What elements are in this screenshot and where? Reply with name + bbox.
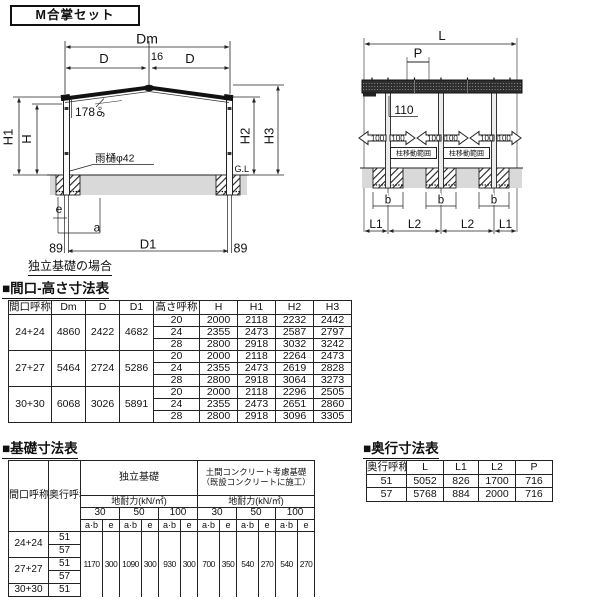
size-table-heading: ■間口-高さ寸法表 bbox=[2, 282, 109, 299]
dim-l2-label: L2 bbox=[408, 217, 422, 231]
table-cell: 2000 bbox=[200, 351, 238, 363]
gutter-note bbox=[70, 165, 154, 172]
d-value: 3026 bbox=[86, 387, 120, 423]
table-cell: 2828 bbox=[314, 363, 352, 375]
load-header: 50 bbox=[237, 508, 276, 520]
column-header: 奥行呼称 bbox=[367, 461, 407, 475]
dm-value: 4860 bbox=[52, 315, 86, 351]
dim-dm-label: Dm bbox=[136, 31, 158, 47]
table-cell: 2264 bbox=[276, 351, 314, 363]
spec-sheet-page: { "title_box": { "label": "M合掌セット" }, "c… bbox=[0, 0, 600, 600]
load-header: 100 bbox=[276, 508, 315, 520]
column-header: 奥行呼称 bbox=[49, 461, 81, 532]
column-header: L1 bbox=[444, 461, 479, 475]
column-right bbox=[227, 98, 233, 195]
leaf-header: a·b bbox=[237, 520, 259, 532]
group-header: 土間コンクリート考慮基礎 （既設コンクリートに施工） bbox=[198, 461, 315, 496]
table-cell: 716 bbox=[516, 474, 553, 488]
column-header: H bbox=[200, 301, 238, 315]
dim-h-label: H bbox=[19, 134, 34, 143]
table-cell: 2473 bbox=[314, 351, 352, 363]
size-table: 間口呼称DmDD1高さ呼称HH1H2H324+24486024224682202… bbox=[8, 300, 352, 423]
table-cell: 2651 bbox=[276, 399, 314, 411]
side-elevation-diagram: L P bbox=[335, 28, 600, 240]
dim-p-label: P bbox=[414, 46, 423, 61]
table-cell: 3242 bbox=[314, 339, 352, 351]
foundation-value: 300 bbox=[142, 532, 159, 597]
group-header: 独立基礎 bbox=[81, 461, 198, 496]
depth-designation: 51 bbox=[49, 532, 81, 545]
table-cell: 2442 bbox=[314, 315, 352, 327]
foundation-value: 1090 bbox=[120, 532, 142, 597]
table-cell: 2505 bbox=[314, 387, 352, 399]
table-cell: 2800 bbox=[200, 375, 238, 387]
dim-e-label: e bbox=[56, 202, 63, 216]
table-cell: 2473 bbox=[238, 363, 276, 375]
foundation-value: 540 bbox=[276, 532, 298, 597]
leaf-header: e bbox=[142, 520, 159, 532]
leaf-header: a·b bbox=[120, 520, 142, 532]
leaf-header: e bbox=[259, 520, 276, 532]
table-cell: 2797 bbox=[314, 327, 352, 339]
dm-value: 5464 bbox=[52, 351, 86, 387]
table-cell: 3096 bbox=[276, 411, 314, 423]
table-cell: 2000 bbox=[200, 315, 238, 327]
table-cell: 2800 bbox=[200, 339, 238, 351]
subheader: 地耐力(kN/㎡) bbox=[198, 496, 315, 508]
foundation-value: 300 bbox=[103, 532, 120, 597]
depth-designation: 51 bbox=[49, 584, 81, 597]
foundation-value: 350 bbox=[220, 532, 237, 597]
column-header: H1 bbox=[238, 301, 276, 315]
table-cell: 2619 bbox=[276, 363, 314, 375]
d1-value: 4682 bbox=[120, 315, 154, 351]
table-cell: 28 bbox=[154, 375, 200, 387]
leaf-header: e bbox=[103, 520, 120, 532]
column-header: D1 bbox=[120, 301, 154, 315]
title-box: M合掌セット bbox=[10, 5, 140, 26]
d-value: 2422 bbox=[86, 315, 120, 351]
table-cell: 2355 bbox=[200, 363, 238, 375]
table-cell: 2118 bbox=[238, 351, 276, 363]
column-header: H3 bbox=[314, 301, 352, 315]
depth-designation: 57 bbox=[49, 571, 81, 584]
dim-89-right-label: 89 bbox=[234, 242, 248, 256]
table-cell: 20 bbox=[154, 315, 200, 327]
foundation-value: 270 bbox=[298, 532, 315, 597]
column-header: H2 bbox=[276, 301, 314, 315]
table-cell: 2296 bbox=[276, 387, 314, 399]
table-cell: 2473 bbox=[238, 399, 276, 411]
dm-value: 6068 bbox=[52, 387, 86, 423]
column-header: L bbox=[407, 461, 444, 475]
table-cell: 2355 bbox=[200, 327, 238, 339]
depth-designation: 57 bbox=[49, 545, 81, 558]
leaf-header: e bbox=[181, 520, 198, 532]
column-header: D bbox=[86, 301, 120, 315]
table-cell: 2232 bbox=[276, 315, 314, 327]
column-header: L2 bbox=[479, 461, 516, 475]
column-header: 間口呼称 bbox=[9, 301, 52, 315]
table-cell: 2800 bbox=[200, 411, 238, 423]
table-cell: 24 bbox=[154, 327, 200, 339]
table-cell: 5768 bbox=[407, 488, 444, 502]
table-cell: 2860 bbox=[314, 399, 352, 411]
width-designation: 27+27 bbox=[9, 351, 52, 387]
width-designation: 24+24 bbox=[9, 315, 52, 351]
column-header: 間口呼称 bbox=[9, 461, 49, 532]
dim-gap-label: 16 bbox=[151, 51, 163, 63]
column-header: 高さ呼称 bbox=[154, 301, 200, 315]
subheader: 地耐力(kN/㎡) bbox=[81, 496, 198, 508]
width-designation: 30+30 bbox=[9, 387, 52, 423]
dim-d1-label: D1 bbox=[140, 237, 157, 252]
table-cell: 2918 bbox=[238, 411, 276, 423]
depth-table: 奥行呼称LL1L2P515052826170071657576888420007… bbox=[366, 460, 553, 502]
table-cell: 1700 bbox=[479, 474, 516, 488]
load-header: 30 bbox=[81, 508, 120, 520]
table-cell: 3305 bbox=[314, 411, 352, 423]
note-178-label: 178 bbox=[75, 105, 95, 119]
width-designation: 24+24 bbox=[9, 532, 49, 558]
dim-b-label: b bbox=[491, 195, 497, 207]
table-cell: 2000 bbox=[479, 488, 516, 502]
foundation-value: 270 bbox=[259, 532, 276, 597]
dim-h1-label: H1 bbox=[1, 129, 16, 146]
column-header: Dm bbox=[52, 301, 86, 315]
dim-l1-label: L1 bbox=[499, 217, 513, 231]
depth-table-heading: ■奥行寸法表 bbox=[363, 442, 439, 459]
load-header: 100 bbox=[159, 508, 198, 520]
depth-designation: 51 bbox=[49, 558, 81, 571]
note-110-label: 110 bbox=[394, 103, 413, 117]
foundation-table: 間口呼称奥行呼称独立基礎土間コンクリート考慮基礎 （既設コンクリートに施工）地耐… bbox=[8, 460, 315, 597]
table-cell: 3273 bbox=[314, 375, 352, 387]
leaf-header: a·b bbox=[81, 520, 103, 532]
move-arrow-label: 100 bbox=[480, 134, 494, 143]
table-cell: 716 bbox=[516, 488, 553, 502]
table-cell: 2587 bbox=[276, 327, 314, 339]
dim-d-right-label: D bbox=[185, 51, 194, 66]
move-range-label: 柱移動範囲 bbox=[449, 149, 484, 158]
table-cell: 2118 bbox=[238, 387, 276, 399]
table-cell: 24 bbox=[154, 363, 200, 375]
front-section-diagram: Dm D D 16 H1 H H2 H3 178 9° 雨樋φ42 G.L bbox=[0, 28, 300, 280]
move-arrow-label: 100 bbox=[427, 134, 441, 143]
table-cell: 3032 bbox=[276, 339, 314, 351]
dim-h3-label: H3 bbox=[262, 128, 277, 145]
gable-roof bbox=[61, 85, 234, 103]
gl-label: G.L bbox=[235, 164, 250, 174]
table-cell: 826 bbox=[444, 474, 479, 488]
dim-b-label: b bbox=[438, 195, 444, 207]
table-cell: 28 bbox=[154, 411, 200, 423]
note-angle-label: 9° bbox=[95, 105, 110, 119]
move-arrow-label: 100 bbox=[498, 134, 512, 143]
table-cell: 2918 bbox=[238, 375, 276, 387]
foundation-value: 700 bbox=[198, 532, 220, 597]
gutter-note-label: 雨樋φ42 bbox=[95, 152, 135, 165]
dim-a-label: a bbox=[94, 221, 101, 235]
leaf-header: a·b bbox=[198, 520, 220, 532]
move-range-label: 柱移動範囲 bbox=[396, 149, 431, 158]
dim-l-label: L bbox=[438, 28, 445, 43]
table-cell: 3064 bbox=[276, 375, 314, 387]
foundation-value: 300 bbox=[181, 532, 198, 597]
load-header: 50 bbox=[120, 508, 159, 520]
move-arrow-label: 100 bbox=[445, 134, 459, 143]
column-left bbox=[64, 98, 70, 195]
dim-b-label: b bbox=[385, 195, 391, 207]
table-cell: 20 bbox=[154, 387, 200, 399]
d1-value: 5286 bbox=[120, 351, 154, 387]
front-caption: 独立基礎の場合 bbox=[28, 257, 112, 276]
foundation-value: 540 bbox=[237, 532, 259, 597]
table-cell: 24 bbox=[154, 399, 200, 411]
load-header: 30 bbox=[198, 508, 237, 520]
move-arrow-label: 100 bbox=[371, 134, 385, 143]
leaf-header: e bbox=[220, 520, 237, 532]
dim-h2-label: H2 bbox=[238, 128, 253, 145]
move-arrow-label: 100 bbox=[391, 134, 405, 143]
width-designation: 30+30 bbox=[9, 584, 49, 597]
table-cell: 57 bbox=[367, 488, 407, 502]
width-designation: 27+27 bbox=[9, 558, 49, 584]
dim-l2-label: L2 bbox=[461, 217, 475, 231]
table-cell: 2355 bbox=[200, 399, 238, 411]
dim-d-left-label: D bbox=[99, 51, 108, 66]
table-cell: 2473 bbox=[238, 327, 276, 339]
table-cell: 2118 bbox=[238, 315, 276, 327]
column-header: P bbox=[516, 461, 553, 475]
dim-l1-label: L1 bbox=[369, 217, 383, 231]
foundation-table-heading: ■基礎寸法表 bbox=[2, 442, 78, 459]
gutter-end bbox=[363, 93, 376, 97]
table-cell: 51 bbox=[367, 474, 407, 488]
table-cell: 2000 bbox=[200, 387, 238, 399]
table-cell: 2918 bbox=[238, 339, 276, 351]
foundation-value: 1170 bbox=[81, 532, 103, 597]
leaf-header: a·b bbox=[276, 520, 298, 532]
leaf-header: e bbox=[298, 520, 315, 532]
foundation-value: 930 bbox=[159, 532, 181, 597]
table-cell: 5052 bbox=[407, 474, 444, 488]
d-value: 2724 bbox=[86, 351, 120, 387]
table-cell: 28 bbox=[154, 339, 200, 351]
dim-89-left-label: 89 bbox=[49, 242, 63, 256]
d1-value: 5891 bbox=[120, 387, 154, 423]
table-cell: 884 bbox=[444, 488, 479, 502]
leaf-header: a·b bbox=[159, 520, 181, 532]
table-cell: 20 bbox=[154, 351, 200, 363]
